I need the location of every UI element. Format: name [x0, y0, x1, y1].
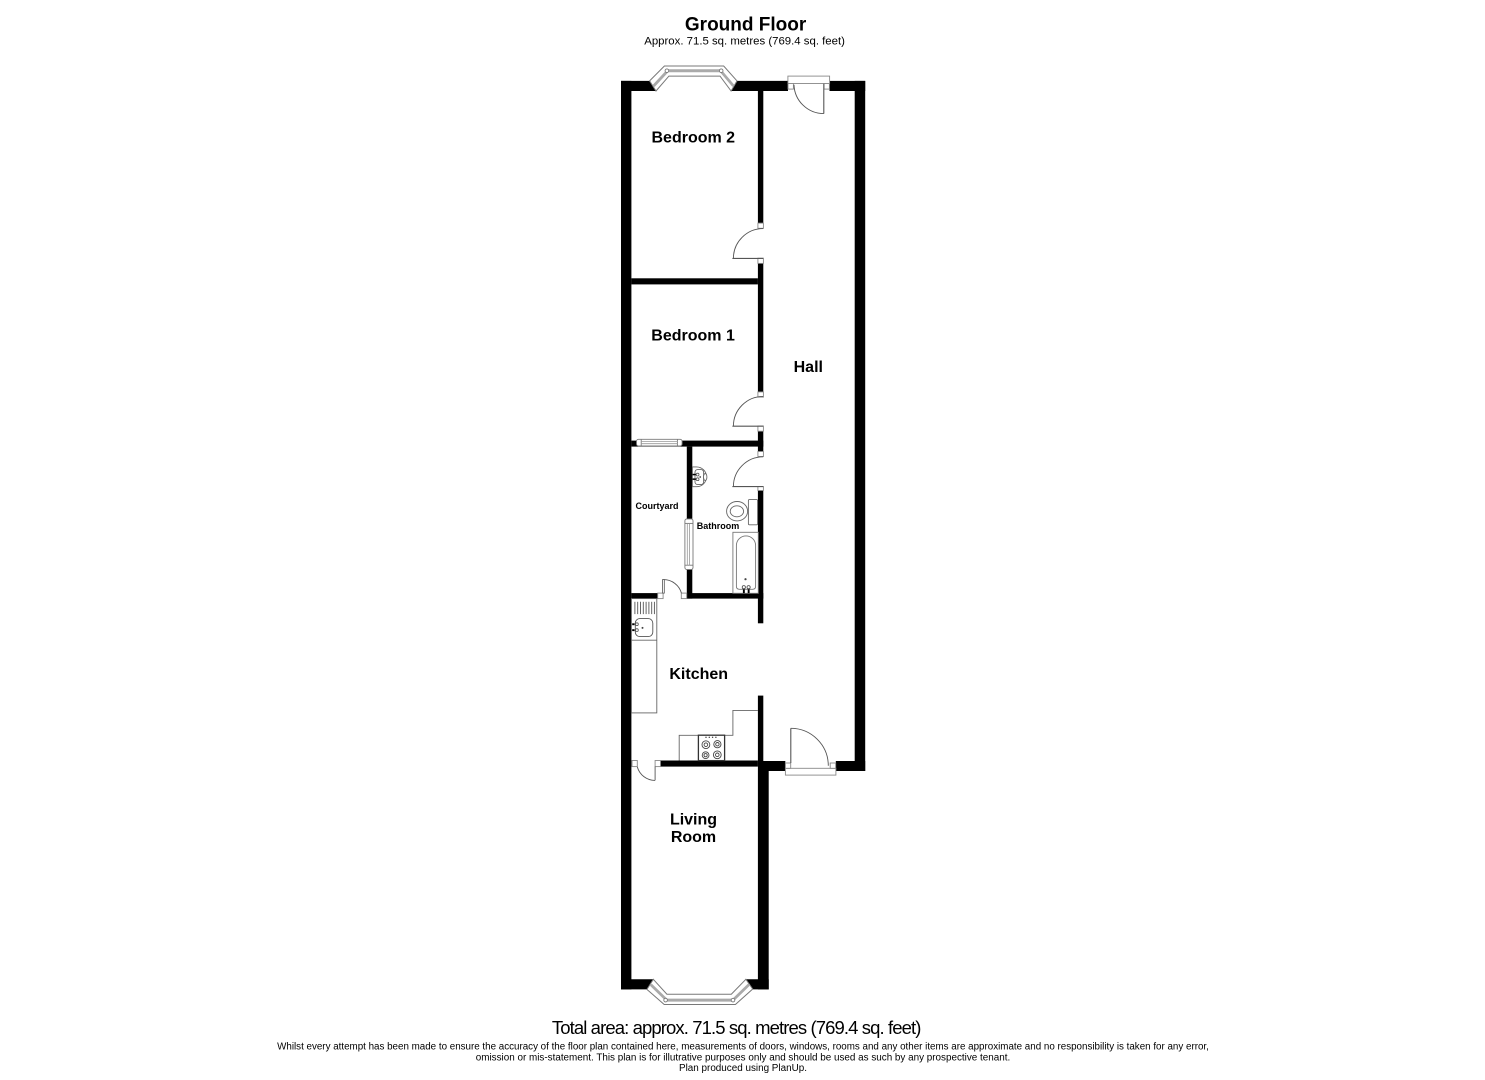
svg-text:Courtyard: Courtyard — [635, 501, 678, 511]
svg-text:Living: Living — [670, 811, 717, 828]
svg-text:Kitchen: Kitchen — [669, 666, 728, 683]
svg-text:Hall: Hall — [794, 359, 823, 376]
svg-text:Bedroom 1: Bedroom 1 — [651, 328, 735, 345]
svg-text:Plan produced using PlanUp.: Plan produced using PlanUp. — [679, 1063, 807, 1074]
svg-text:omission or mis-statement. Thi: omission or mis-statement. This plan is … — [476, 1052, 1010, 1063]
svg-text:Approx. 71.5 sq. metres (769.4: Approx. 71.5 sq. metres (769.4 sq. feet) — [644, 36, 845, 48]
svg-text:Room: Room — [671, 829, 716, 846]
svg-text:Whilst every attempt has been: Whilst every attempt has been made to en… — [277, 1041, 1209, 1052]
svg-text:Bedroom 2: Bedroom 2 — [652, 129, 736, 146]
svg-text:Total area: approx. 71.5 sq. m: Total area: approx. 71.5 sq. metres (769… — [552, 1017, 921, 1038]
svg-text:Ground Floor: Ground Floor — [685, 15, 807, 36]
svg-text:Bathroom: Bathroom — [697, 521, 740, 531]
